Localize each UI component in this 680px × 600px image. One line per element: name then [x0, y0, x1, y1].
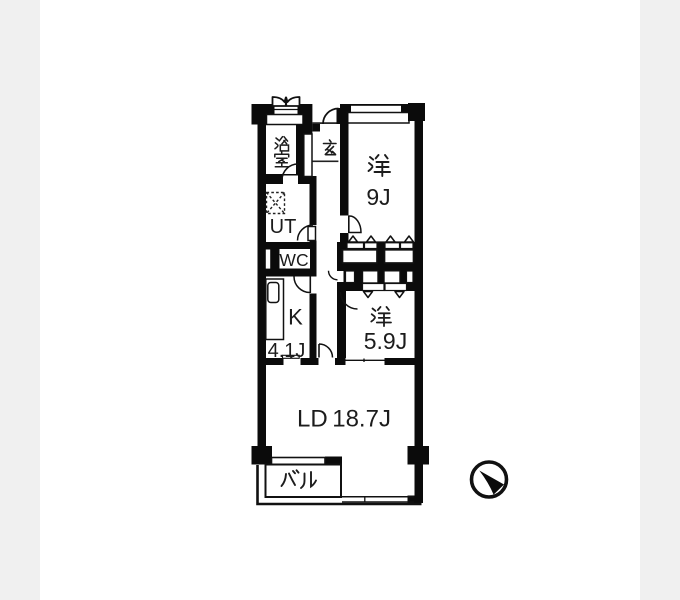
svg-text:UT: UT	[270, 216, 297, 238]
svg-text:LD18.7J: LD18.7J	[297, 406, 391, 433]
svg-text:4.1J: 4.1J	[268, 340, 306, 362]
svg-text:5.9J: 5.9J	[364, 328, 407, 354]
svg-text:K: K	[288, 305, 303, 330]
svg-text:9J: 9J	[366, 184, 390, 210]
svg-text:WC: WC	[279, 250, 308, 270]
